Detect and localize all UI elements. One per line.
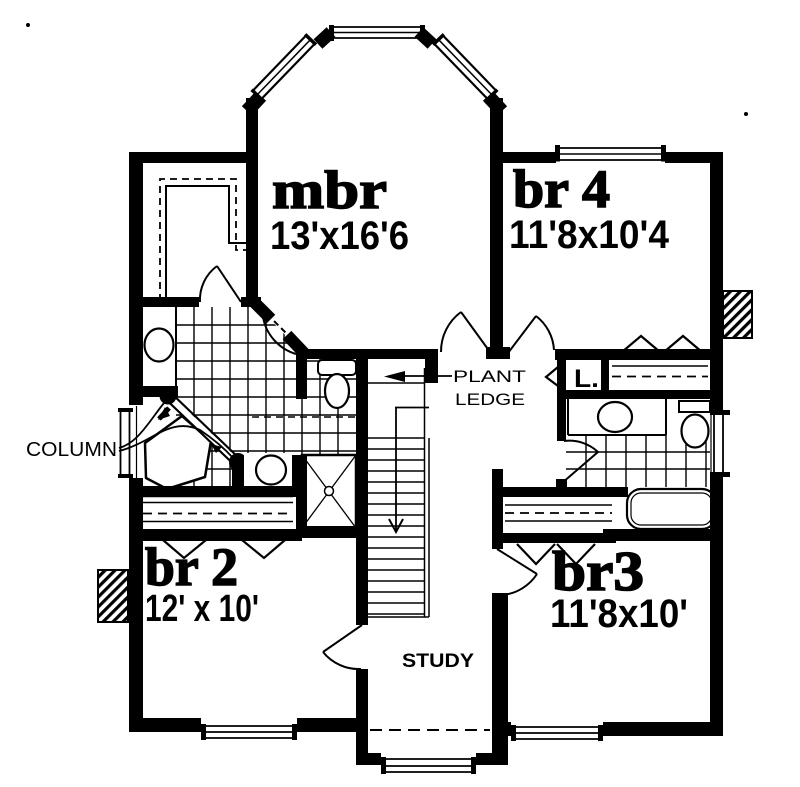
svg-text:COLUMN: COLUMN [26,439,117,461]
svg-text:mbr: mbr [272,160,387,220]
svg-text:11'8x10'4: 11'8x10'4 [509,213,670,257]
svg-text:LEDGE: LEDGE [455,390,525,409]
svg-text:L.: L. [574,365,599,393]
svg-text:13'x16'6: 13'x16'6 [270,214,409,258]
svg-text:12' x 10': 12' x 10' [145,588,259,630]
svg-text:br 4: br 4 [513,159,610,219]
svg-text:11'8x10': 11'8x10' [550,592,688,636]
svg-text:PLANT: PLANT [453,367,526,386]
svg-text:STUDY: STUDY [402,650,474,672]
